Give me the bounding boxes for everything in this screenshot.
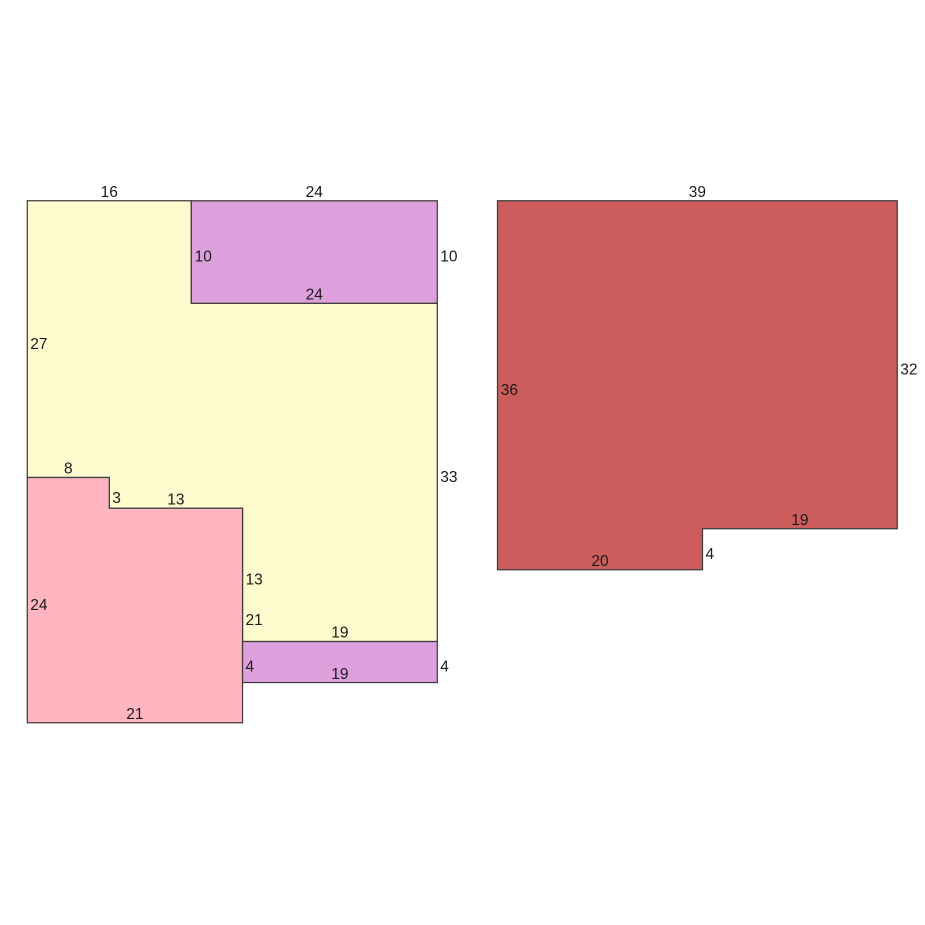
svg-text:24: 24	[306, 184, 324, 201]
svg-text:27: 27	[30, 336, 47, 353]
svg-text:19: 19	[331, 625, 348, 642]
svg-text:3: 3	[112, 490, 121, 507]
svg-text:8: 8	[64, 461, 73, 478]
svg-text:20: 20	[591, 553, 609, 570]
svg-text:39: 39	[689, 184, 706, 201]
svg-text:16: 16	[101, 184, 118, 201]
svg-text:4: 4	[246, 659, 255, 676]
svg-text:19: 19	[331, 666, 348, 683]
svg-text:19: 19	[791, 512, 808, 529]
svg-text:10: 10	[440, 249, 458, 266]
svg-text:24: 24	[306, 287, 324, 304]
svg-text:10: 10	[195, 249, 213, 266]
svg-text:24: 24	[30, 597, 48, 614]
svg-text:21: 21	[246, 612, 263, 629]
svg-text:13: 13	[167, 492, 184, 509]
svg-text:36: 36	[501, 382, 518, 399]
svg-text:33: 33	[440, 469, 457, 486]
svg-text:4: 4	[440, 659, 449, 676]
svg-text:21: 21	[126, 706, 143, 723]
svg-text:32: 32	[900, 361, 917, 378]
svg-text:4: 4	[706, 546, 715, 563]
svg-text:13: 13	[246, 572, 263, 589]
